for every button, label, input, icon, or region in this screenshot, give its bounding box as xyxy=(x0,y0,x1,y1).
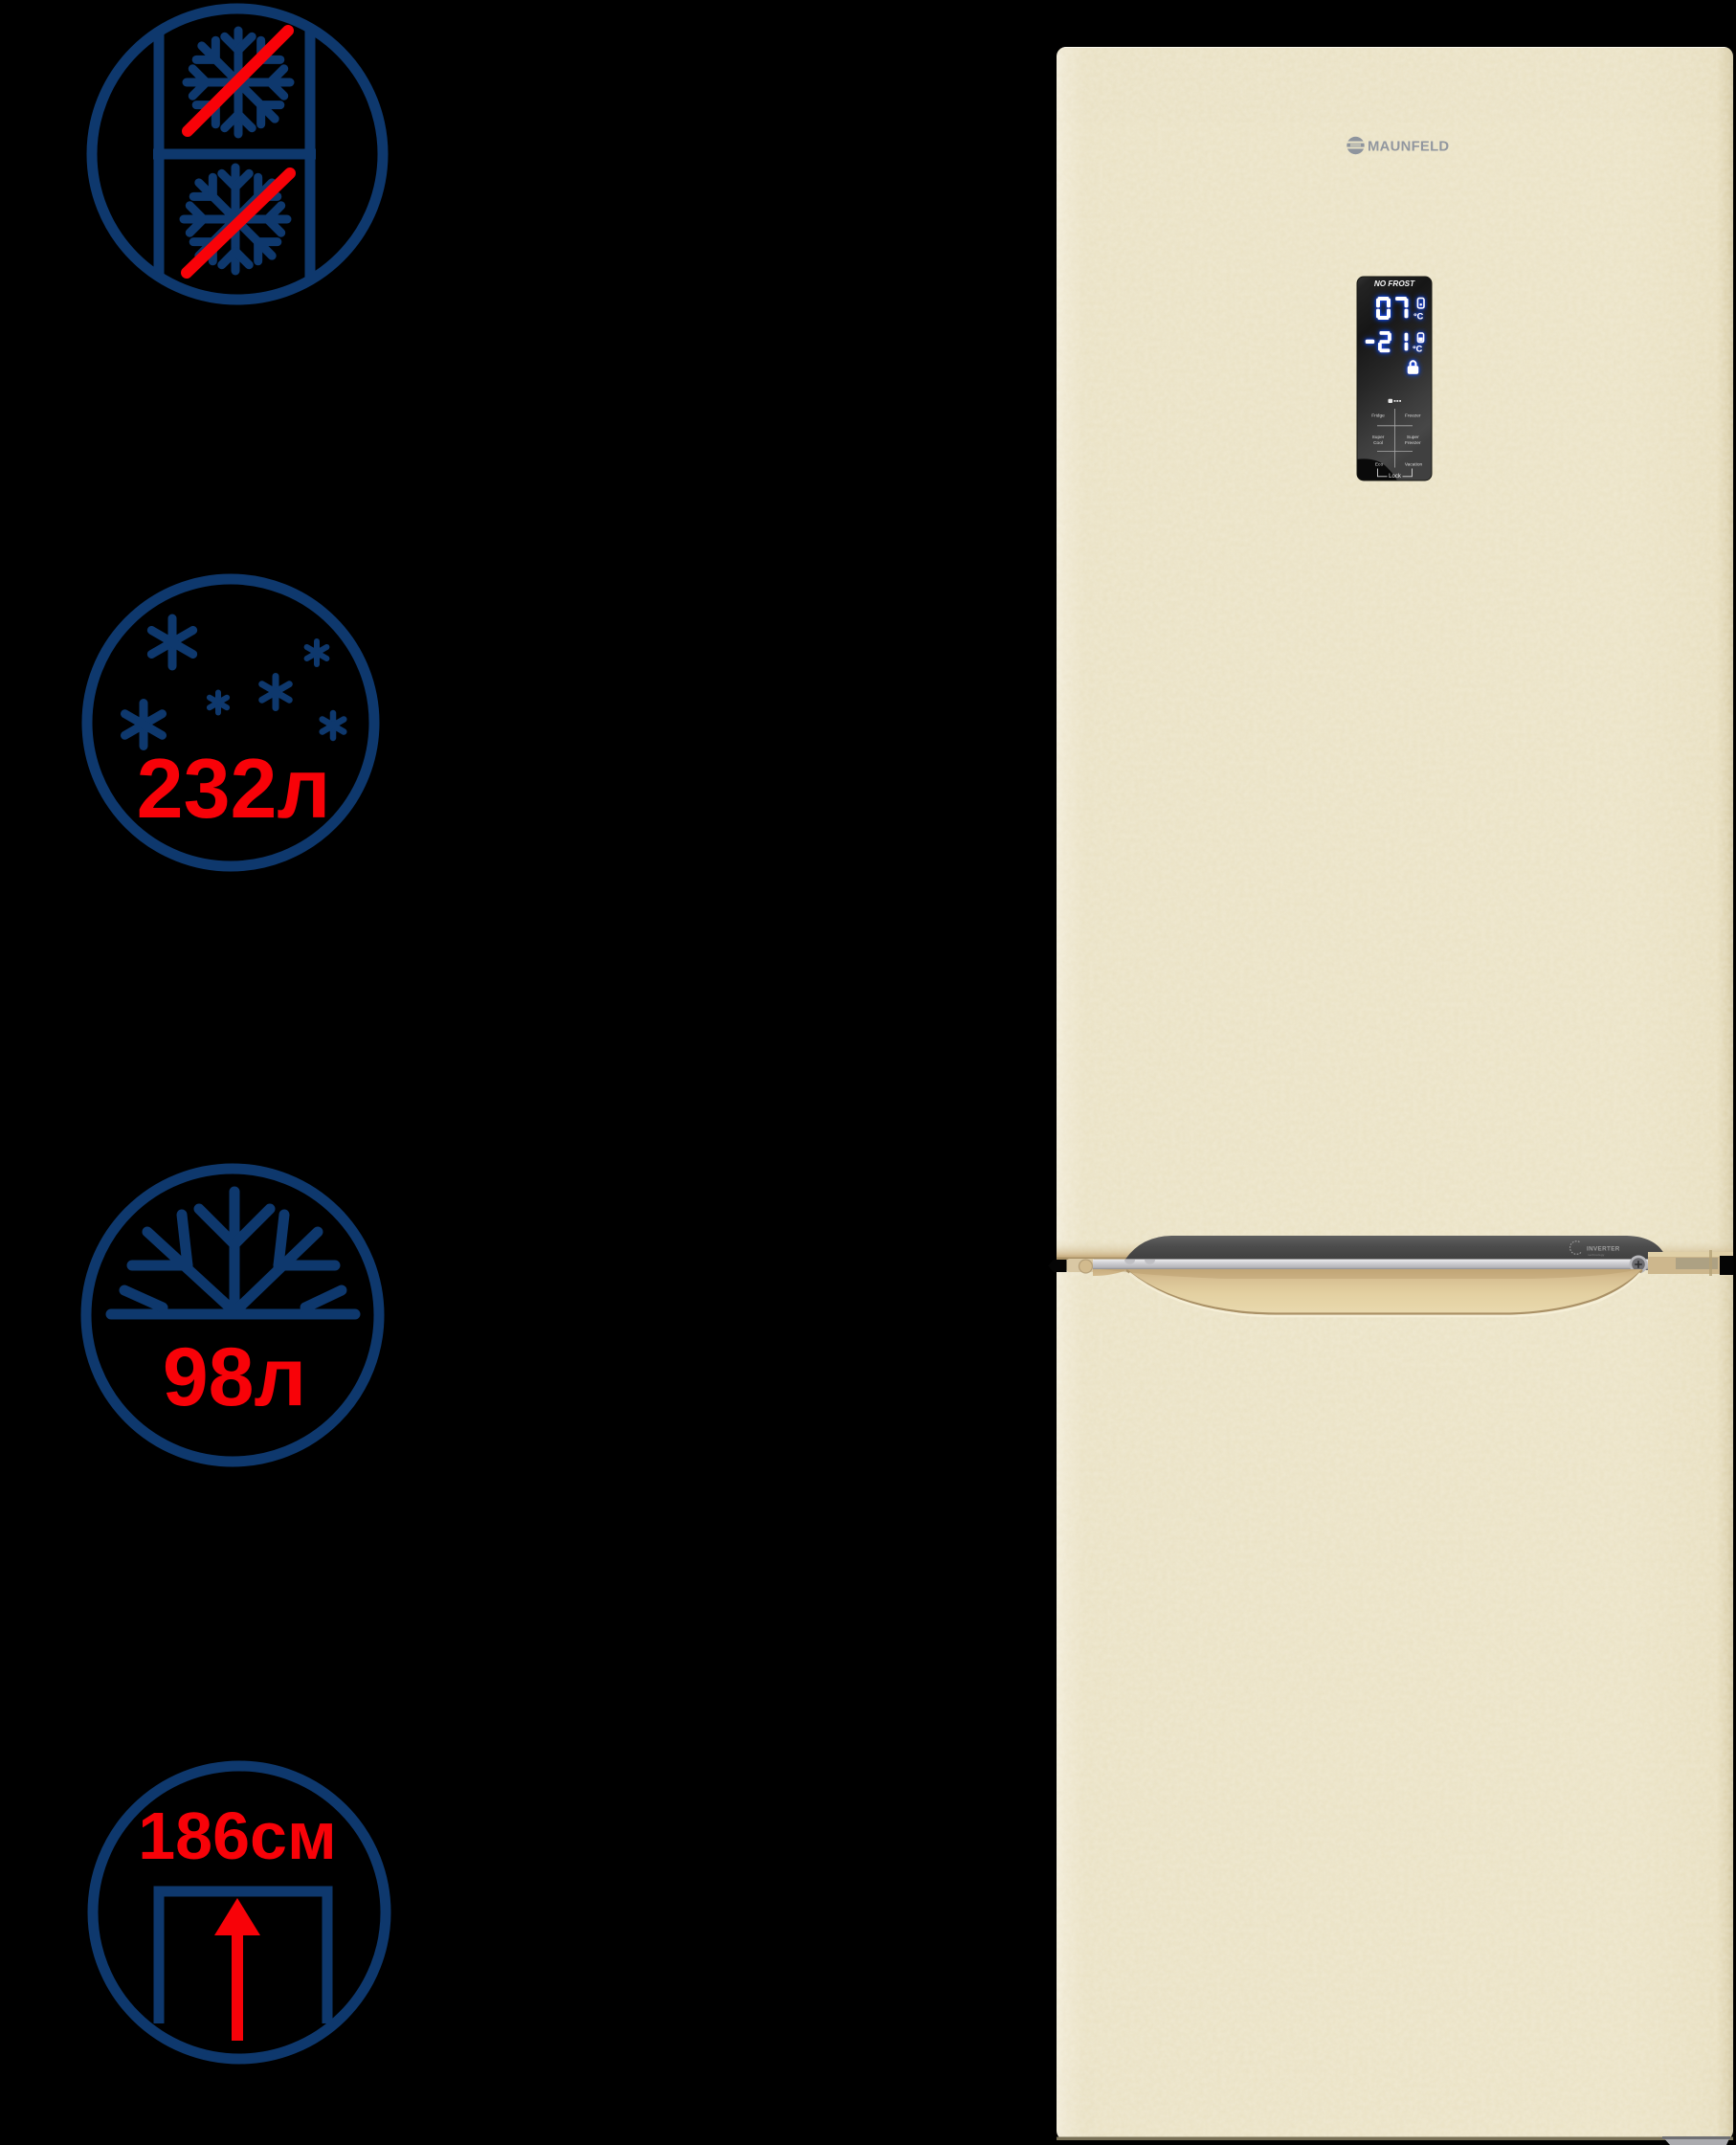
svg-text:Lock: Lock xyxy=(1389,474,1402,480)
svg-text:technology: technology xyxy=(1588,1253,1604,1257)
svg-text:Super: Super xyxy=(1372,435,1385,440)
svg-text:Vacation: Vacation xyxy=(1405,462,1423,468)
svg-text:Super: Super xyxy=(1407,435,1419,440)
svg-text:Cool: Cool xyxy=(1373,440,1383,446)
svg-text:Fridge: Fridge xyxy=(1371,413,1385,419)
svg-text:Freezer: Freezer xyxy=(1405,413,1421,419)
svg-text:Freezer: Freezer xyxy=(1405,440,1421,446)
svg-text:INVERTER: INVERTER xyxy=(1587,1246,1620,1253)
svg-text:186см: 186см xyxy=(138,1799,337,1873)
svg-text:Eco: Eco xyxy=(1375,462,1384,468)
svg-text:98л: 98л xyxy=(163,1331,306,1423)
svg-text:232л: 232л xyxy=(137,741,331,836)
svg-text:°C: °C xyxy=(1413,345,1423,354)
svg-text:°C: °C xyxy=(1413,312,1424,322)
svg-text:NO FROST: NO FROST xyxy=(1374,279,1415,288)
svg-text:MAUNFELD: MAUNFELD xyxy=(1368,140,1449,155)
